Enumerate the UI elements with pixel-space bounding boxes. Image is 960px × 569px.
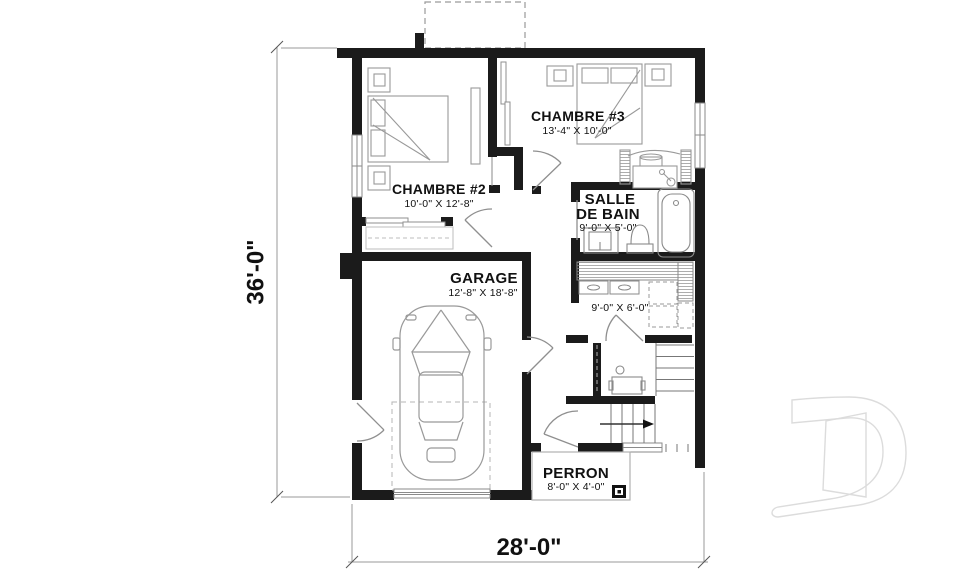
dimension-height-label: 36'-0" bbox=[242, 239, 269, 304]
wall-left-middle bbox=[352, 197, 362, 400]
label-perron-name: PERRON bbox=[543, 465, 609, 482]
wall-left-upper bbox=[352, 58, 362, 135]
bedroom2-closet bbox=[354, 217, 453, 249]
bathtub bbox=[658, 189, 694, 257]
floor-plan-drawing: 36'-0" 28'-0" CHAMBRE #3 13'-4" X 10'-0"… bbox=[0, 0, 960, 569]
wall-right-upper bbox=[695, 48, 705, 103]
wall-top-stub bbox=[415, 33, 424, 49]
watermark-inner-outline bbox=[823, 413, 866, 497]
bedroom2-furniture bbox=[368, 68, 480, 190]
wall-top bbox=[337, 48, 705, 58]
bedroom2-nightstand-bottom bbox=[368, 166, 390, 190]
label-chambre2-dims: 10'-0" X 12'-8" bbox=[404, 198, 473, 210]
label-chambre2-name: CHAMBRE #2 bbox=[392, 181, 486, 197]
watermark-outer-outline bbox=[772, 397, 906, 517]
entry-landing-sill bbox=[623, 443, 662, 452]
garage-side-door bbox=[357, 403, 384, 441]
wall-garage-top bbox=[352, 252, 531, 261]
perron-post bbox=[612, 485, 626, 498]
wall-south-mid bbox=[578, 443, 623, 452]
wall-garage-right-lower bbox=[522, 372, 531, 500]
wall-garage-right-upper bbox=[522, 261, 531, 340]
label-bain-line2: DE BAIN bbox=[576, 206, 640, 223]
dimension-left bbox=[271, 41, 350, 503]
bedroom3-nightstand-right bbox=[645, 64, 671, 86]
label-garage-name: GARAGE bbox=[450, 270, 518, 287]
stair-direction-arrow bbox=[600, 420, 654, 429]
wall-garage-front-left bbox=[352, 490, 394, 500]
floor-plan-page: 36'-0" 28'-0" CHAMBRE #3 13'-4" X 10'-0"… bbox=[0, 0, 960, 569]
wall-ch2-east bbox=[488, 57, 497, 157]
cabinets bbox=[579, 281, 639, 294]
label-bain-dims: 9'-0" X 5'-0" bbox=[579, 222, 636, 234]
label-garage-dims: 12'-8" X 18'-8" bbox=[448, 287, 517, 299]
bedroom2-bed bbox=[368, 96, 448, 162]
wall-bath-left-stub1 bbox=[571, 190, 580, 202]
wall-bath-left-stub2 bbox=[571, 238, 580, 253]
car bbox=[393, 306, 491, 480]
garage-apron-dashed bbox=[392, 402, 490, 490]
wall-hall-right bbox=[514, 147, 523, 190]
label-perron-dims: 8'-0" X 4'-0" bbox=[547, 481, 604, 493]
wall-left-bump bbox=[340, 253, 352, 279]
label-chambre3-name: CHAMBRE #3 bbox=[531, 108, 625, 124]
label-utility-dims: 9'-0" X 6'-0" bbox=[591, 302, 648, 314]
wall-south-stub bbox=[531, 443, 541, 452]
wall-wc-bottom bbox=[566, 396, 655, 404]
window-left bbox=[352, 135, 362, 197]
bedroom3-door bbox=[533, 151, 561, 190]
bedroom3-nightstand-left bbox=[547, 66, 573, 86]
bedroom2-nightstand-top bbox=[368, 68, 390, 92]
wall-ch2-east-stub bbox=[489, 185, 500, 193]
counter-side bbox=[678, 262, 693, 301]
bedroom3-closet bbox=[501, 62, 510, 145]
utility-door bbox=[606, 315, 643, 341]
wall-right-lower bbox=[695, 168, 705, 468]
dimension-width-label: 28'-0" bbox=[496, 534, 561, 561]
utility-room-fixtures bbox=[577, 262, 693, 328]
label-chambre3-dims: 13'-4" X 10'-0" bbox=[542, 125, 611, 137]
counter-top bbox=[577, 262, 678, 280]
window-right bbox=[695, 103, 705, 168]
bedroom2-door bbox=[465, 209, 492, 247]
wall-wc-top-right bbox=[645, 335, 692, 343]
wc-fixtures bbox=[609, 366, 645, 394]
roof-outline-dashed bbox=[425, 2, 525, 48]
entry-door bbox=[544, 411, 578, 447]
bedroom2-dresser bbox=[471, 88, 480, 164]
garage-door-panel bbox=[394, 489, 490, 498]
wall-wc-top-left bbox=[566, 335, 588, 343]
stair-treads-upper bbox=[656, 345, 694, 391]
garage-items bbox=[392, 306, 491, 498]
garage-hall-door bbox=[527, 337, 553, 374]
watermark-d-logo bbox=[772, 397, 906, 517]
